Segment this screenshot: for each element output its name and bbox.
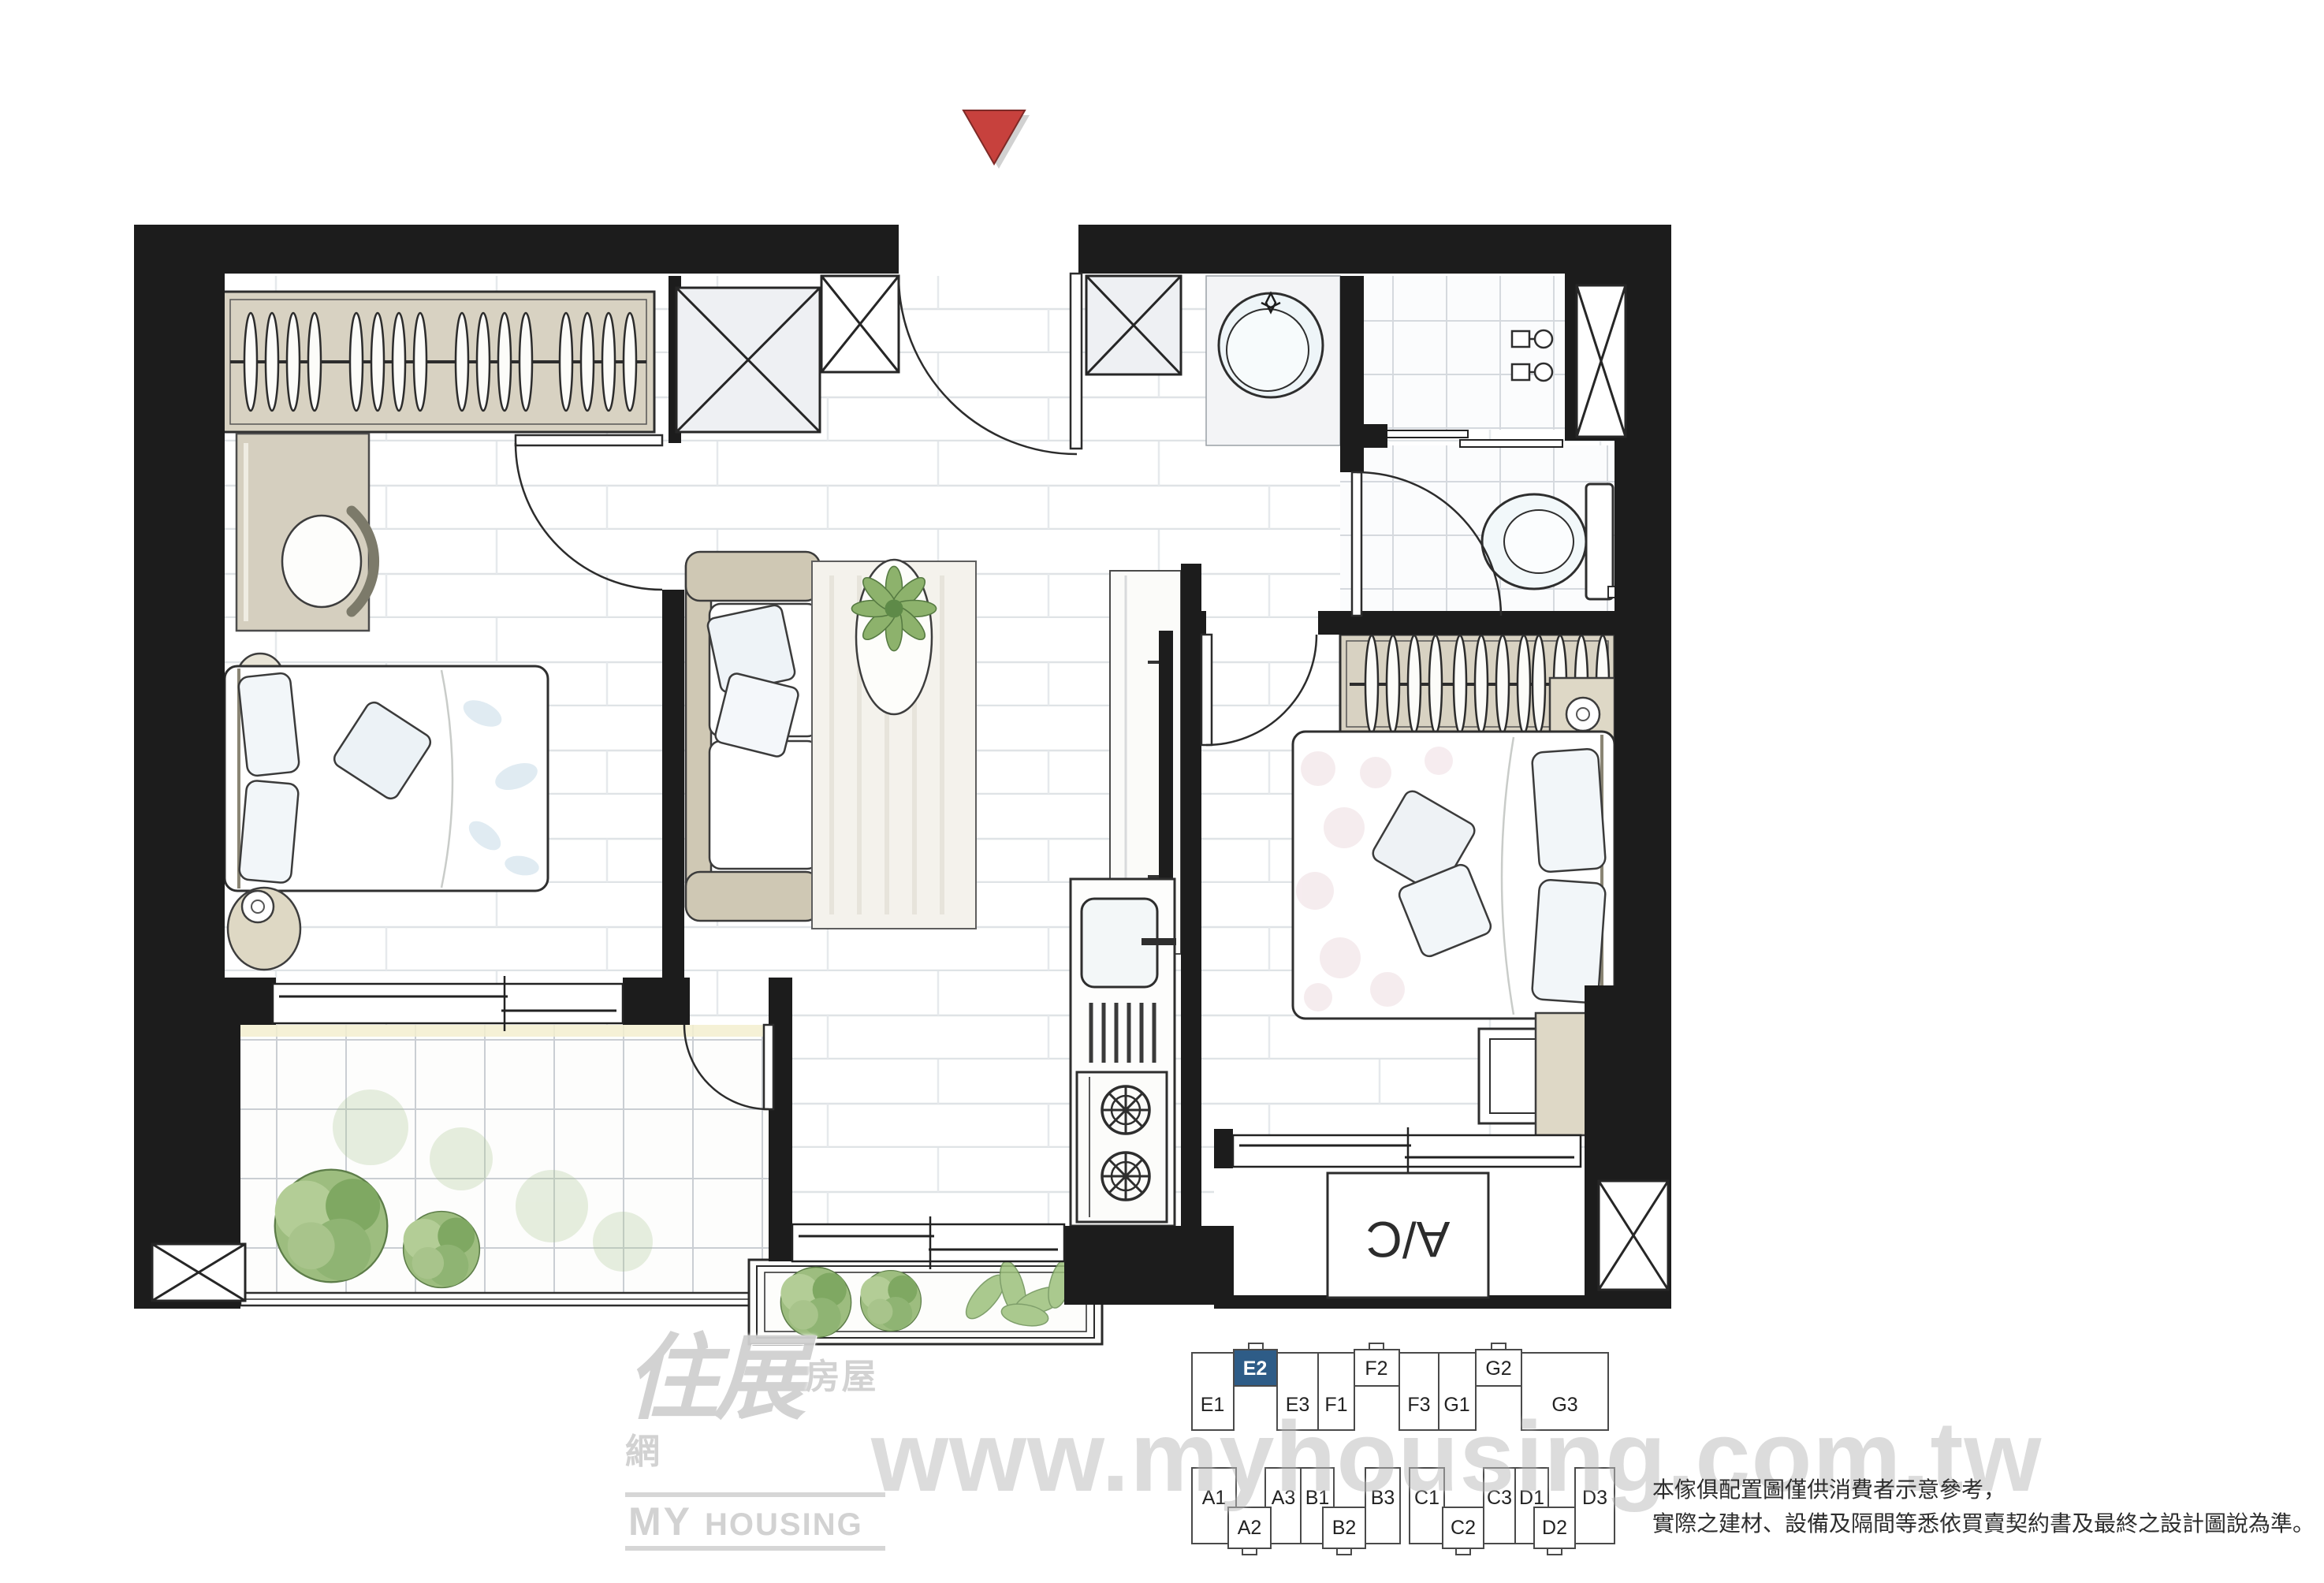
logo-cjk-main: 住展 [625, 1327, 802, 1431]
keyplan-label: G2 [1485, 1358, 1511, 1380]
shaft-box-icon [1577, 285, 1626, 437]
balcony-plant-icon [275, 1170, 388, 1283]
keyplan-label: D2 [1542, 1517, 1567, 1539]
ac-label: A/C [1366, 1211, 1451, 1268]
kitchen-window [792, 1216, 1064, 1269]
keyplan-label: F2 [1365, 1358, 1387, 1380]
keyplan-label: A2 [1238, 1517, 1262, 1539]
logo-latin: MY HOUSING [625, 1492, 885, 1551]
stove [1077, 1072, 1167, 1222]
keyplan-label: B2 [1332, 1517, 1357, 1539]
wardrobe-1 [222, 292, 654, 432]
entry-cabinet-icon [1086, 276, 1181, 374]
ac-platform: A/C [1328, 1173, 1488, 1298]
bedside-stool-lamp [228, 888, 300, 970]
kitchen [1071, 879, 1176, 1226]
entry-cabinet-icon [821, 276, 899, 372]
entry-cabinet-icon [676, 288, 820, 432]
bedroom1-window [273, 976, 623, 1031]
logo-latin-my: MY [628, 1499, 691, 1544]
sofa [686, 552, 820, 921]
disclaimer-line-1: 本傢俱配置圖僅供消費者示意參考， [1652, 1473, 2315, 1507]
shaft-box-icon [1599, 1181, 1668, 1290]
planter-box [749, 1257, 1102, 1344]
disclaimer-text: 本傢俱配置圖僅供消費者示意參考， 實際之建材、設備及隔間等悉依買賣契約書及最終之… [1652, 1473, 2315, 1541]
keyplan-label: C2 [1451, 1517, 1476, 1539]
logo-latin-housing: HOUSING [705, 1507, 863, 1542]
floor-plan-canvas: A/C E1 E2 E3 F1 F2 F3 G1 G2 G3 [0, 0, 2324, 1583]
balcony-rail [240, 1293, 751, 1306]
bed-2 [1293, 732, 1615, 1019]
desk-chair [282, 511, 374, 612]
bed-1 [225, 666, 548, 891]
keyplan-label-highlight: E2 [1243, 1358, 1268, 1380]
entrance-direction-icon [963, 110, 1030, 169]
disclaimer-line-2: 實際之建材、設備及隔間等悉依買賣契約書及最終之設計圖說為準。 [1652, 1507, 2315, 1540]
balcony-plant-icon [404, 1212, 480, 1288]
shaft-box-icon [152, 1244, 245, 1301]
myhousing-logo: 住展 房屋網 MY HOUSING [625, 1335, 885, 1551]
